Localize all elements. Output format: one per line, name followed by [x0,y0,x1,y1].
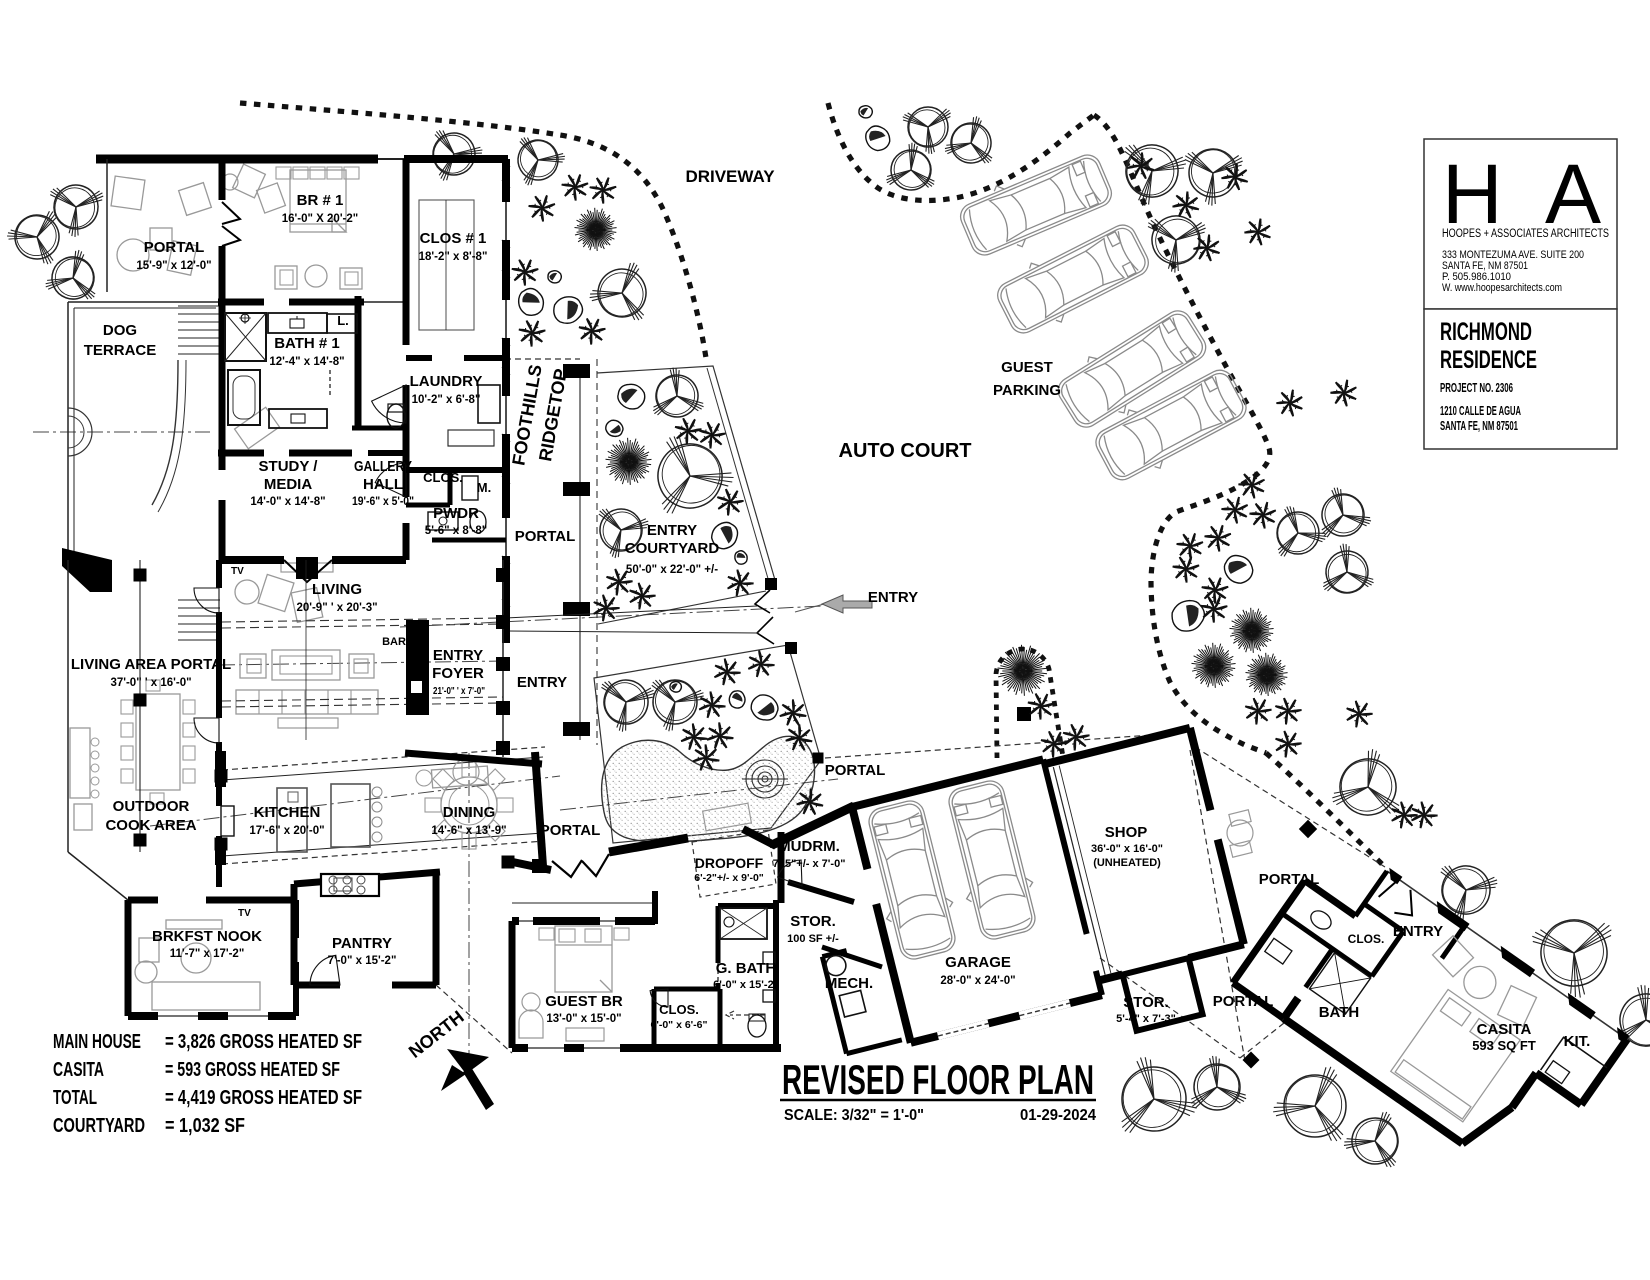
svg-text:PANTRY: PANTRY [332,935,392,952]
svg-text:LIVING: LIVING [312,581,362,598]
svg-text:SANTA FE, NM 87501: SANTA FE, NM 87501 [1440,418,1518,433]
svg-text:STOR.: STOR. [790,913,836,930]
svg-text:KITCHEN: KITCHEN [254,804,321,821]
svg-text:KIT.: KIT. [1564,1033,1591,1050]
svg-text:STUDY /: STUDY / [259,458,319,475]
svg-text:01-29-2024: 01-29-2024 [1020,1107,1096,1124]
svg-text:10'-2" x 6'-8": 10'-2" x 6'-8" [412,394,481,406]
svg-text:G. BATH: G. BATH [716,960,777,977]
svg-text:HALL: HALL [363,476,403,493]
svg-text:CASITA: CASITA [1477,1021,1532,1038]
svg-text:18'-2" x 8'-8": 18'-2" x 8'-8" [419,251,488,263]
svg-text:CLOS # 1: CLOS # 1 [420,230,487,247]
svg-text:PORTAL: PORTAL [1259,871,1320,888]
svg-text:COURTYARD: COURTYARD [625,540,720,557]
svg-text:5'-4" x 7'-3": 5'-4" x 7'-3" [1116,1013,1176,1025]
svg-text:5'-6" x 8'-8": 5'-6" x 8'-8" [425,525,487,537]
svg-text:DINING: DINING [443,804,496,821]
svg-text:14'-6" x 13'-9": 14'-6" x 13'-9" [431,825,506,837]
svg-text:DRIVEWAY: DRIVEWAY [685,167,775,186]
svg-text:17'-6" x 20'-0": 17'-6" x 20'-0" [249,825,324,837]
svg-text:COURTYARD: COURTYARD [53,1115,145,1137]
svg-text:MAIN HOUSE: MAIN HOUSE [53,1031,141,1053]
svg-text:21'-0" ' x 7'-0": 21'-0" ' x 7'-0" [433,685,485,697]
svg-text:PARKING: PARKING [993,382,1061,399]
svg-text:= 4,419 GROSS HEATED SF: = 4,419 GROSS HEATED SF [165,1087,362,1109]
svg-text:6'-0" x 15'-2": 6'-0" x 15'-2" [713,979,779,991]
svg-text:GARAGE: GARAGE [945,954,1011,971]
svg-text:BATH: BATH [1319,1004,1360,1021]
svg-text:HOOPES + ASSOCIATES ARCHITECTS: HOOPES + ASSOCIATES ARCHITECTS [1442,228,1609,240]
svg-text:7'-0" x 15'-2": 7'-0" x 15'-2" [328,955,397,967]
svg-text:PORTAL: PORTAL [1213,993,1274,1010]
svg-text:50'-0" x 22'-0" +/-: 50'-0" x 22'-0" +/- [626,564,718,576]
svg-text:13'-0" x 15'-0": 13'-0" x 15'-0" [546,1013,621,1025]
svg-text:19'-6" x 5'-0": 19'-6" x 5'-0" [352,496,414,508]
svg-text:CLOS.: CLOS. [423,470,463,485]
svg-text:36'-0" x 16'-0": 36'-0" x 16'-0" [1091,843,1163,855]
svg-text:MECH.: MECH. [825,975,873,992]
svg-text:28'-0" x 24'-0": 28'-0" x 24'-0" [940,975,1015,987]
svg-text:OUTDOOR: OUTDOOR [113,798,190,815]
svg-text:SHOP: SHOP [1105,824,1148,841]
svg-text:PROJECT NO. 2306: PROJECT NO. 2306 [1440,380,1513,395]
svg-text:GUEST: GUEST [1001,359,1053,376]
svg-text:PORTAL: PORTAL [825,762,886,779]
svg-text:6'-2"+/- x 9'-0": 6'-2"+/- x 9'-0" [694,872,764,884]
svg-text:RESIDENCE: RESIDENCE [1440,346,1537,374]
svg-text:TOTAL: TOTAL [53,1087,97,1109]
svg-text:PWDR: PWDR [433,505,479,522]
svg-text:CLOS.: CLOS. [659,1002,699,1017]
svg-text:MEDIA: MEDIA [264,476,313,493]
svg-text:GUEST BR: GUEST BR [545,993,623,1010]
svg-text:COOK AREA: COOK AREA [105,817,196,834]
svg-text:11'-7" x 17'-2": 11'-7" x 17'-2" [170,948,245,960]
svg-text:BR # 1: BR # 1 [297,192,344,209]
svg-text:PORTAL: PORTAL [515,528,576,545]
svg-text:6'-0" x 6'-6": 6'-0" x 6'-6" [651,1019,708,1031]
svg-text:100 SF +/-: 100 SF +/- [787,933,839,945]
svg-text:REVISED FLOOR PLAN: REVISED FLOOR PLAN [782,1056,1094,1103]
svg-text:593 SQ FT: 593 SQ FT [1472,1038,1536,1053]
svg-text:14'-0" x 14'-8": 14'-0" x 14'-8" [250,496,325,508]
svg-text:H: H [1442,147,1503,241]
svg-text:W. www.hoopesarchitects.com: W. www.hoopesarchitects.com [1442,282,1562,294]
svg-text:MUDRM.: MUDRM. [778,838,840,855]
svg-text:20'-9" ' x 20'-3": 20'-9" ' x 20'-3" [296,602,377,614]
svg-text:FOYER: FOYER [432,665,484,682]
svg-text:LAUNDRY: LAUNDRY [410,373,483,390]
svg-text:LIVING AREA PORTAL: LIVING AREA PORTAL [71,656,231,673]
svg-text:= 593 GROSS HEATED SF: = 593 GROSS HEATED SF [165,1059,340,1081]
svg-text:ENTRY: ENTRY [1393,923,1443,940]
svg-text:CLOS.: CLOS. [1348,932,1385,946]
svg-text:= 3,826 GROSS HEATED SF: = 3,826 GROSS HEATED SF [165,1031,362,1053]
svg-text:RICHMOND: RICHMOND [1440,318,1532,346]
svg-text:DROPOFF: DROPOFF [695,855,764,871]
svg-text:DOG: DOG [103,322,137,339]
svg-text:CASITA: CASITA [53,1059,104,1081]
svg-text:37'-0" ' x 16'-0": 37'-0" ' x 16'-0" [110,677,191,689]
svg-text:= 1,032 SF: = 1,032 SF [165,1115,245,1137]
svg-text:ENTRY: ENTRY [433,647,483,664]
svg-text:TV: TV [231,566,244,577]
svg-text:SCALE: 3/32" = 1'-0": SCALE: 3/32" = 1'-0" [784,1107,924,1124]
svg-text:BRKFST NOOK: BRKFST NOOK [152,928,262,945]
svg-text:16'-0" X 20'-2": 16'-0" X 20'-2" [282,213,358,225]
svg-text:L.: L. [337,313,349,328]
svg-text:BATH # 1: BATH # 1 [274,335,340,352]
svg-text:M.: M. [477,480,491,495]
svg-text:A: A [1545,147,1601,241]
svg-text:(UNHEATED): (UNHEATED) [1093,857,1161,869]
svg-text:PORTAL: PORTAL [540,822,601,839]
svg-text:ENTRY: ENTRY [517,674,567,691]
svg-text:STOR.: STOR. [1123,994,1169,1011]
svg-text:AUTO COURT: AUTO COURT [839,440,972,462]
svg-text:PORTAL: PORTAL [144,239,205,256]
svg-text:TERRACE: TERRACE [84,342,157,359]
svg-text:7'-5"+/- x 7'-0": 7'-5"+/- x 7'-0" [773,858,846,870]
svg-text:12'-4" x 14'-8": 12'-4" x 14'-8" [269,356,344,368]
svg-text:15'-9" x 12'-0": 15'-9" x 12'-0" [136,260,211,272]
svg-text:1210 CALLE DE AGUA: 1210 CALLE DE AGUA [1440,403,1521,418]
svg-text:GALLERY: GALLERY [354,458,412,475]
svg-text:TV: TV [238,908,251,919]
svg-text:ENTRY: ENTRY [647,522,697,539]
svg-text:BAR: BAR [382,636,406,648]
svg-text:ENTRY: ENTRY [868,589,918,606]
